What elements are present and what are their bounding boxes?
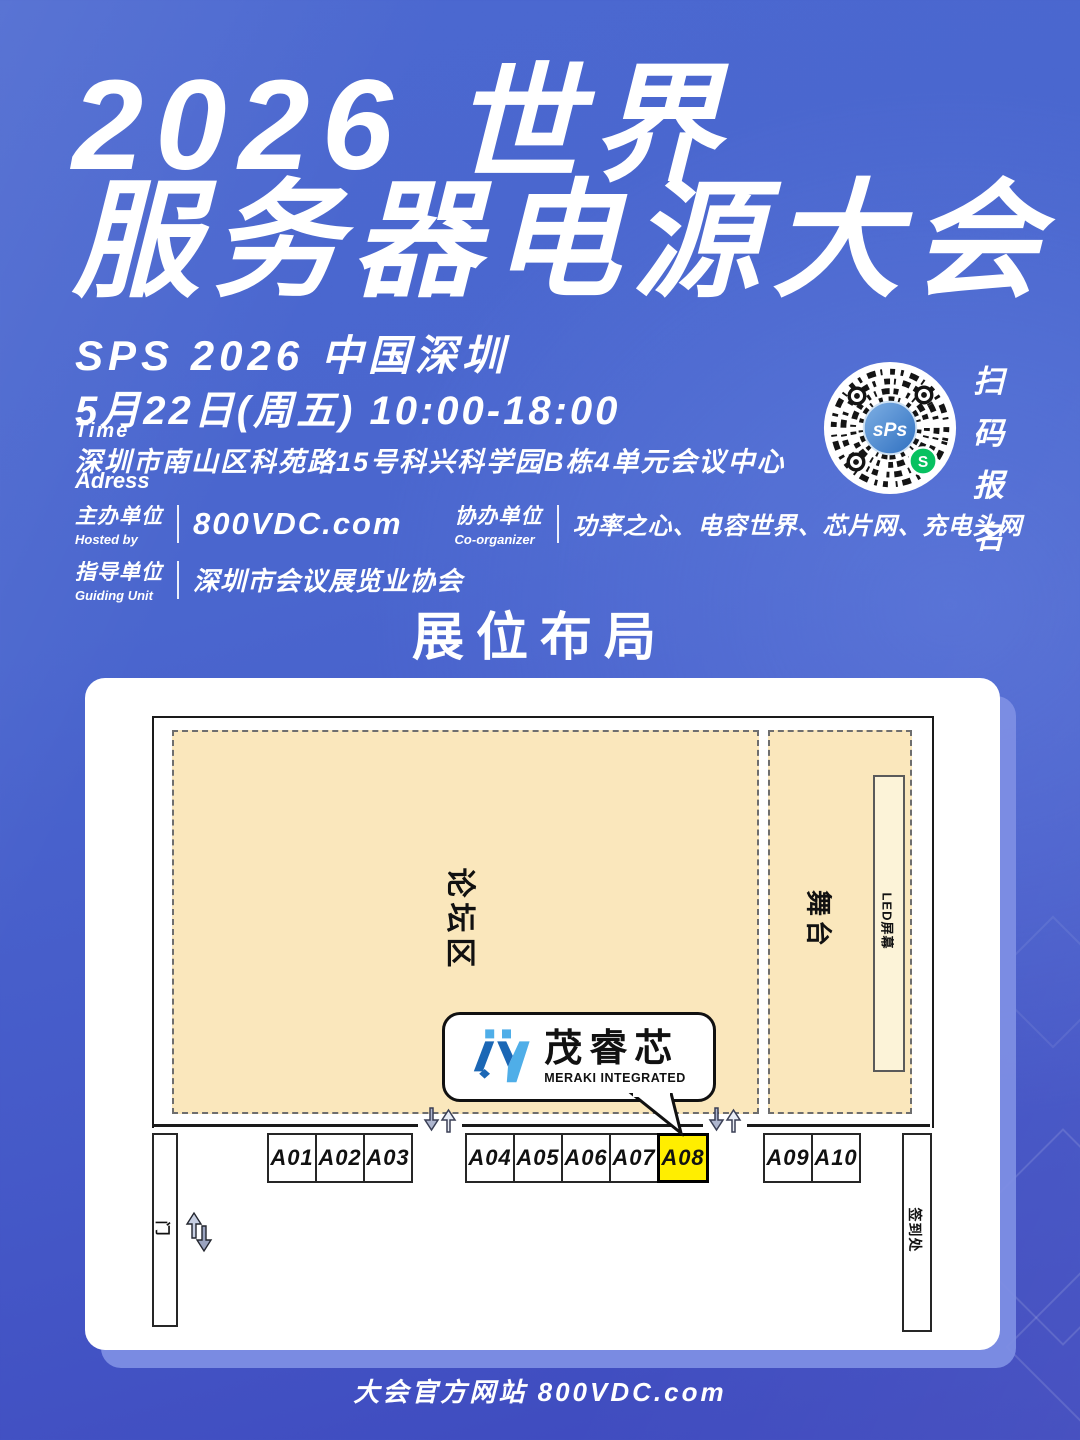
caption-char: 码	[973, 408, 1004, 453]
guiding-unit-label-cn: 指导单位	[75, 556, 163, 586]
hosted-by-label-en: Hosted by	[75, 532, 163, 547]
door-arrows-icon	[708, 1106, 742, 1134]
coorganizer-label-en: Co-organizer	[455, 532, 543, 547]
door-arrows-icon	[423, 1106, 457, 1134]
door-swing-arrows-icon	[185, 1210, 215, 1254]
checkin-label: 签到处	[905, 1208, 925, 1253]
booth-a10: A10	[811, 1133, 861, 1183]
decor-diamond	[987, 916, 1080, 1049]
divider	[177, 505, 179, 543]
qr-center-text: sPs	[873, 419, 908, 441]
coorganizer-label-cn: 协办单位	[455, 500, 543, 530]
event-address: 深圳市南山区科苑路15号科兴科学园B栋4单元会议中心	[75, 440, 786, 479]
coorganizer-block: 协办单位 Co-organizer	[455, 500, 543, 547]
poster-subtitle: SPS 2026 中国深圳	[75, 322, 509, 383]
brand-name-en: MERAKI INTEGRATED	[544, 1071, 686, 1085]
meraki-logo-icon	[472, 1027, 532, 1087]
caption-char: 名	[973, 512, 1004, 557]
divider	[177, 561, 179, 599]
qr-code[interactable]: sPs S	[822, 360, 958, 496]
hosted-by-block: 主办单位 Hosted by	[75, 500, 163, 547]
brand-name-cn: 茂睿芯	[544, 1030, 686, 1068]
forum-area-label: 论坛区	[441, 868, 485, 973]
brand-callout-bubble: 茂睿芯 MERAKI INTEGRATED	[442, 1012, 716, 1102]
hosted-by-label-cn: 主办单位	[75, 500, 163, 530]
wechat-glyph: S	[918, 454, 928, 471]
poster-title-line2: 服务器电源大会	[72, 178, 1052, 306]
brand-text-block: 茂睿芯 MERAKI INTEGRATED	[544, 1030, 686, 1085]
divider	[557, 505, 559, 543]
guiding-unit-value: 深圳市会议展览业协会	[193, 561, 463, 598]
address-label: Adress	[75, 468, 150, 494]
section-title-cn: 展位布局	[0, 595, 1080, 670]
hosted-by-value: 800VDC.com	[193, 506, 403, 542]
caption-char: 报	[973, 460, 1004, 505]
floorplan-panel: 论坛区 舞台 LED屏幕 A01 A02 A03 A04 A05 A06 A07…	[85, 678, 1000, 1350]
organizer-row-1: 主办单位 Hosted by 800VDC.com 协办单位 Co-organi…	[75, 500, 1023, 547]
official-website-footer: 大会官方网站 800VDC.com	[0, 1372, 1080, 1409]
booth-a05: A05	[513, 1133, 563, 1183]
door-label: 门	[153, 1220, 174, 1235]
callout-tail	[623, 1093, 687, 1137]
wall-segment	[747, 1124, 930, 1127]
booth-a06: A06	[561, 1133, 611, 1183]
booth-group-1: A01 A02 A03	[267, 1133, 413, 1183]
booth-a08-highlighted: A08	[657, 1133, 709, 1183]
stage-label: 舞台	[802, 890, 839, 950]
caption-char: 扫	[973, 356, 1004, 401]
wall-segment	[152, 1124, 418, 1127]
booth-a01: A01	[267, 1133, 317, 1183]
booth-group-3: A09 A10	[763, 1133, 861, 1183]
booth-a02: A02	[315, 1133, 365, 1183]
scan-to-register-caption: 扫 码 报 名	[973, 356, 1004, 557]
coorganizer-value: 功率之心、电容世界、芯片网、充电头网	[573, 506, 1023, 541]
booth-a04: A04	[465, 1133, 515, 1183]
led-screen-label: LED屏幕	[879, 892, 898, 949]
booth-a03: A03	[363, 1133, 413, 1183]
booth-a07: A07	[609, 1133, 659, 1183]
booth-a09: A09	[763, 1133, 813, 1183]
booth-group-2: A04 A05 A06 A07 A08	[465, 1133, 709, 1183]
event-datetime: 5月22日(周五) 10:00-18:00	[75, 378, 620, 436]
